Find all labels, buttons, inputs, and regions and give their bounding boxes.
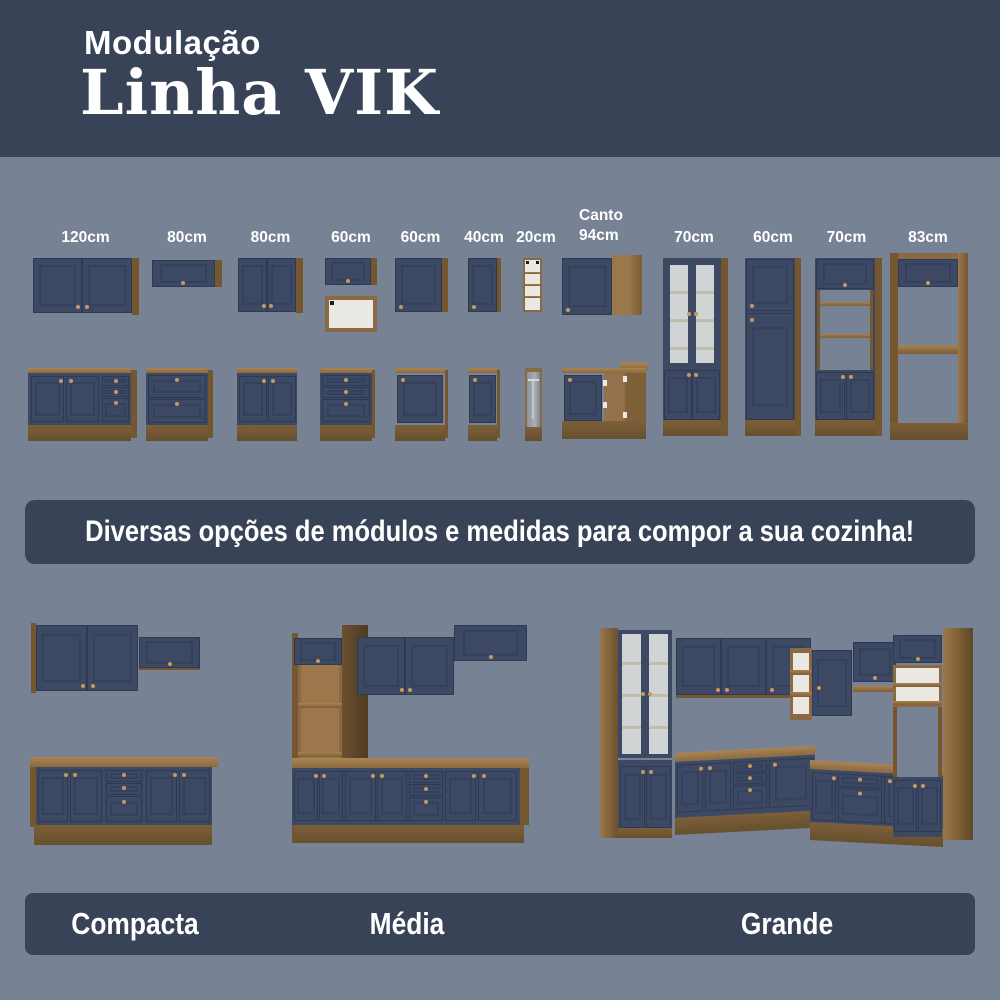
knob — [482, 774, 486, 778]
wood-side — [131, 370, 137, 438]
knob — [694, 312, 698, 316]
countertop — [30, 757, 218, 767]
knob — [262, 379, 266, 383]
door — [677, 764, 703, 813]
door — [377, 771, 407, 821]
knob — [59, 379, 63, 383]
module-size-label: 80cm — [152, 228, 222, 248]
door — [31, 376, 64, 422]
knob — [344, 402, 348, 406]
door — [345, 771, 376, 821]
knob — [114, 379, 118, 383]
wood-side — [442, 258, 448, 312]
knob — [770, 688, 774, 692]
corner-shelf-unit — [790, 648, 812, 720]
wood-side — [132, 258, 139, 315]
knob — [873, 676, 877, 680]
knob — [168, 662, 172, 666]
door — [692, 370, 720, 420]
hinge — [536, 261, 539, 264]
knob — [568, 378, 572, 382]
knob — [849, 375, 853, 379]
module-wall-40 — [468, 258, 501, 312]
door — [357, 637, 405, 695]
knob — [858, 792, 862, 796]
tall-tower — [892, 635, 943, 840]
wood-side — [445, 370, 448, 438]
knob — [716, 688, 720, 692]
wood-side — [721, 258, 728, 436]
module-size-label: 60cm — [325, 228, 377, 248]
shelf — [525, 284, 540, 286]
wall-flip-cabinet — [853, 642, 897, 698]
knob — [271, 379, 275, 383]
module-base-drawers-80 — [146, 368, 213, 441]
knob — [473, 378, 477, 382]
knob — [380, 774, 384, 778]
page-title: Linha VIK — [80, 56, 439, 129]
wall-cabinet — [31, 623, 139, 693]
hinge — [623, 376, 627, 382]
door — [469, 375, 496, 423]
knob — [641, 770, 645, 774]
knob — [926, 281, 930, 285]
knob — [69, 379, 73, 383]
door — [646, 766, 671, 828]
knob — [489, 655, 493, 659]
hinge — [330, 301, 334, 305]
promo-banner: Diversas opções de módulos e medidas par… — [25, 500, 975, 564]
door — [397, 375, 443, 423]
door — [445, 771, 476, 821]
plinth — [468, 425, 497, 441]
module-size-label: 80cm — [238, 228, 303, 248]
knob — [725, 688, 729, 692]
wall-cabinet — [357, 637, 454, 695]
door — [38, 770, 68, 822]
wood-corner-panel — [612, 255, 642, 315]
plinth — [294, 825, 524, 843]
module-tall-oven-70 — [815, 258, 882, 436]
knob — [122, 773, 126, 777]
plinth — [146, 425, 208, 441]
shelf — [790, 670, 812, 675]
base-run — [292, 758, 529, 843]
module-base-towel-20 — [525, 368, 542, 441]
door — [179, 770, 210, 822]
hinge — [603, 380, 607, 386]
module-tall-open-83 — [890, 253, 968, 440]
door — [395, 258, 442, 312]
wall-flip-cabinet — [139, 637, 202, 670]
module-size-label: 40cm — [462, 228, 506, 248]
wood-side — [795, 258, 801, 436]
knob — [408, 688, 412, 692]
base-run — [30, 757, 218, 845]
module-size-label: 20cm — [514, 228, 558, 248]
knob — [648, 692, 652, 696]
knob — [401, 378, 405, 382]
plinth — [320, 425, 372, 441]
knob — [316, 659, 320, 663]
module-size-label: 120cm — [48, 228, 123, 248]
wall-flip-cabinet — [454, 625, 529, 663]
door — [676, 638, 721, 695]
wood-side — [372, 370, 375, 438]
shelf — [525, 272, 540, 274]
knob — [346, 279, 350, 283]
module-wall-120 — [33, 258, 139, 315]
knob — [750, 304, 754, 308]
door — [746, 259, 794, 311]
plinth — [663, 420, 721, 436]
door — [620, 766, 645, 828]
knob — [114, 390, 118, 394]
knob — [566, 308, 570, 312]
knob — [314, 774, 318, 778]
knob — [913, 784, 917, 788]
module-base-120 — [28, 368, 137, 441]
knob — [114, 401, 118, 405]
plinth — [28, 425, 131, 441]
module-wall-flip-80 — [152, 260, 222, 287]
wall-cabinet-corner — [812, 650, 853, 718]
knob — [344, 390, 348, 394]
door — [812, 650, 852, 716]
countertop — [292, 758, 529, 768]
module-tall-glass-70 — [663, 258, 728, 436]
knob — [750, 318, 754, 322]
wood-side — [875, 258, 882, 436]
plinth — [890, 423, 968, 440]
tall-glass-cabinet — [600, 628, 676, 838]
door — [70, 770, 102, 822]
shelf — [790, 692, 812, 697]
module-base-40 — [468, 368, 500, 441]
wood-side-panel — [943, 628, 973, 840]
plinth — [745, 420, 795, 436]
shelf — [853, 686, 896, 692]
towel — [532, 381, 534, 419]
knob — [641, 692, 645, 696]
door — [746, 313, 794, 420]
wood-side — [215, 260, 222, 287]
door — [294, 771, 318, 821]
knob — [687, 373, 691, 377]
knob — [472, 774, 476, 778]
knob — [175, 402, 179, 406]
shelf — [817, 302, 873, 306]
knob — [122, 786, 126, 790]
door — [319, 771, 343, 821]
knob — [182, 773, 186, 777]
knob — [173, 773, 177, 777]
layout-label-grande: Grande — [733, 893, 842, 955]
knob — [472, 305, 476, 309]
knob — [64, 773, 68, 777]
module-wall-canto-94 — [562, 255, 648, 315]
kitchen-grande — [600, 620, 975, 850]
plinth — [395, 425, 445, 441]
open-shelf-zone — [817, 290, 873, 370]
knob — [181, 281, 185, 285]
hinge — [603, 402, 607, 408]
wood-side — [497, 258, 501, 312]
door — [816, 372, 845, 420]
door — [146, 770, 177, 822]
module-base-drawers-60 — [320, 368, 375, 441]
door — [468, 258, 497, 312]
module-base-80 — [237, 368, 300, 441]
door — [562, 258, 612, 315]
header-banner: Modulação Linha VIK — [0, 0, 1000, 157]
hinge — [526, 261, 529, 264]
module-tall-60 — [745, 258, 801, 436]
knob — [817, 686, 821, 690]
knob — [424, 787, 428, 791]
plinth — [237, 425, 297, 441]
door — [82, 258, 132, 313]
module-wall-60 — [395, 258, 448, 312]
plinth — [525, 427, 542, 441]
open-niche — [325, 296, 377, 332]
knob — [921, 784, 925, 788]
door — [664, 370, 692, 420]
wood-side — [958, 253, 968, 440]
knob — [843, 283, 847, 287]
knob — [81, 684, 85, 688]
knob — [76, 305, 80, 309]
module-wall-flip-60 — [325, 258, 377, 332]
knob — [916, 657, 920, 661]
knob — [73, 773, 77, 777]
knob — [694, 373, 698, 377]
shelf — [893, 701, 942, 705]
open-zone — [893, 707, 942, 777]
wood-stile — [890, 253, 898, 430]
knob — [371, 774, 375, 778]
base-run-left — [675, 746, 815, 837]
shelf — [898, 345, 958, 354]
promo-banner-text: Diversas opções de módulos e medidas par… — [85, 515, 914, 549]
door — [87, 625, 138, 691]
knob — [85, 305, 89, 309]
knob — [91, 684, 95, 688]
wood-side — [296, 258, 303, 313]
door — [33, 258, 82, 313]
layout-label-bar: Compacta Média Grande — [25, 893, 975, 955]
door — [478, 771, 517, 821]
wood-side — [371, 258, 377, 285]
knob — [262, 304, 266, 308]
module-size-label: 60cm — [741, 228, 805, 248]
knob — [400, 688, 404, 692]
knob — [344, 378, 348, 382]
knob — [687, 312, 691, 316]
layout-label-media: Média — [363, 893, 451, 955]
wood-side — [600, 628, 618, 838]
shelf — [817, 334, 873, 338]
shelf — [525, 296, 540, 298]
layout-label-compacta: Compacta — [60, 893, 210, 955]
door — [36, 625, 87, 691]
plinth — [618, 828, 672, 838]
module-size-label: 70cm — [661, 228, 727, 248]
wood-side — [520, 768, 529, 825]
module-wall-80 — [238, 258, 303, 313]
module-base-canto-94 — [562, 362, 650, 441]
knob — [269, 304, 273, 308]
door — [846, 372, 874, 420]
infographic-canvas: Modulação Linha VIK 120cm 80cm 80cm 60cm… — [0, 0, 1000, 1000]
door — [405, 637, 454, 695]
module-size-label: 70cm — [814, 228, 879, 248]
open-shelf-zone — [893, 665, 942, 707]
module-shelf-20 — [523, 258, 542, 312]
knob — [424, 800, 428, 804]
knob — [841, 375, 845, 379]
plinth — [815, 420, 875, 436]
module-base-60 — [395, 368, 448, 441]
wood-side — [497, 370, 500, 438]
knob — [858, 778, 862, 782]
plinth — [34, 825, 212, 845]
knob — [399, 305, 403, 309]
module-size-label: Canto 94cm — [579, 206, 639, 246]
knob — [832, 776, 836, 780]
knob — [649, 770, 653, 774]
module-size-label: 83cm — [896, 228, 960, 248]
hinge — [623, 412, 627, 418]
knob — [122, 800, 126, 804]
wood-side — [208, 370, 213, 438]
knob — [322, 774, 326, 778]
module-size-label: 60cm — [394, 228, 447, 248]
door — [721, 638, 766, 695]
knob — [424, 774, 428, 778]
knob — [175, 378, 179, 382]
plinth — [562, 421, 646, 439]
